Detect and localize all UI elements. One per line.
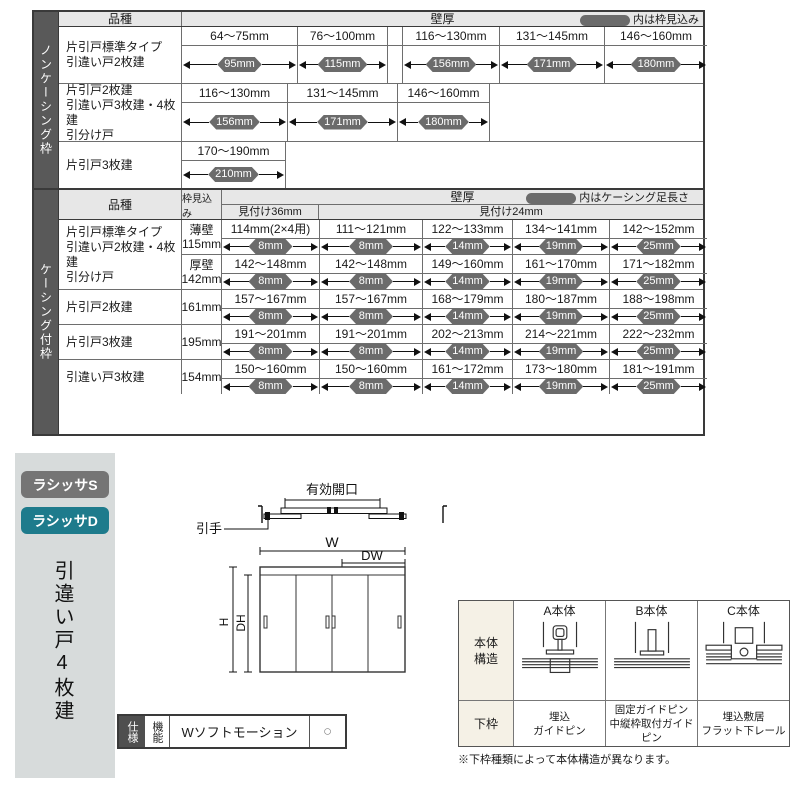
legend-capsule-icon	[526, 193, 576, 204]
arrowhead-icon	[699, 278, 706, 286]
arrow-line	[618, 246, 636, 247]
arrowhead-icon	[611, 278, 618, 286]
arrow-line	[431, 386, 445, 387]
arrowhead-icon	[321, 348, 328, 356]
dimension-arrow: 25mm	[610, 344, 707, 359]
door-diagram: 有効開口 引手 W DW H DH	[150, 470, 470, 720]
dimension-cell: 142〜148mm8mm	[222, 255, 319, 289]
arrowhead-icon	[491, 61, 498, 69]
wall-range: 161〜172mm	[423, 360, 512, 379]
frame-depth-capsule: 210mm	[208, 167, 259, 182]
lower-frame-c: 埋込敷居 フラット下レール	[698, 701, 789, 746]
frame-depth-capsule: 19mm	[539, 239, 584, 254]
legend-text: 内はケーシング足長さ	[579, 191, 689, 206]
wall-range: 116〜130mm	[182, 84, 287, 103]
wall-range: 76〜100mm	[298, 27, 387, 46]
kind-column-header: 品種	[59, 12, 182, 26]
dimension-arrow: 25mm	[610, 309, 707, 324]
arrow-line	[190, 122, 209, 123]
wall-range: 214〜221mm	[513, 325, 609, 344]
dimension-cell: 214〜221mm19mm	[512, 325, 609, 359]
frame-depth-capsule: 8mm	[249, 239, 293, 254]
dimension-arrow: 8mm	[222, 239, 319, 254]
dimension-subrow: 161mm157〜167mm8mm157〜167mm8mm168〜179mm14…	[182, 290, 703, 324]
arrow-line	[293, 351, 312, 352]
dimension-subrow: 195mm191〜201mm8mm191〜201mm8mm202〜213mm14…	[182, 325, 703, 359]
empty-filler-cell	[285, 142, 703, 188]
non-casing-table: ノンケーシング枠 品種 壁厚 内は枠見込み 片引戸標準タイプ 引違い戸2枚建64…	[32, 10, 705, 190]
arrow-line	[230, 246, 249, 247]
dimension-cell: 122〜133mm14mm	[422, 220, 512, 254]
arrow-line	[431, 246, 445, 247]
arrowhead-icon	[481, 118, 488, 126]
arrowhead-icon	[504, 243, 511, 251]
body-a-title: A本体	[543, 604, 575, 618]
dimension-arrow: 180mm	[605, 46, 707, 83]
dimension-cell: 146〜160mm180mm	[604, 27, 707, 83]
dimension-cell: 191〜201mm8mm	[319, 325, 422, 359]
page: ノンケーシング枠 品種 壁厚 内は枠見込み 片引戸標準タイプ 引違い戸2枚建64…	[0, 0, 800, 800]
arrow-line	[490, 351, 504, 352]
series-badge-lixil-s[interactable]: ラシッサS	[21, 471, 109, 498]
arrowhead-icon	[699, 61, 706, 69]
arrowhead-icon	[611, 313, 618, 321]
arrowhead-icon	[514, 278, 521, 286]
wall-range: 142〜148mm	[222, 255, 319, 274]
arrowhead-icon	[596, 61, 603, 69]
arrow-line	[393, 386, 414, 387]
arrowhead-icon	[183, 61, 190, 69]
arrow-line	[262, 64, 289, 65]
arrowhead-icon	[311, 243, 318, 251]
dimension-cell: 168〜179mm14mm	[422, 290, 512, 324]
arrow-line	[583, 246, 601, 247]
dimension-arrow: 19mm	[513, 379, 609, 394]
wall-range: 191〜201mm	[320, 325, 422, 344]
arrow-line	[230, 386, 249, 387]
arrow-line	[618, 351, 636, 352]
dimension-cell: 150〜160mm8mm	[222, 360, 319, 394]
wall-range: 149〜160mm	[423, 255, 512, 274]
wall-thickness-header-cell: 壁厚 内はケーシング足長さ	[222, 190, 703, 205]
arrow-line	[681, 351, 699, 352]
arrow-line	[583, 351, 601, 352]
arrowhead-icon	[504, 383, 511, 391]
arrowhead-icon	[289, 61, 296, 69]
table-row: 片引戸2枚建161mm157〜167mm8mm157〜167mm8mm168〜1…	[59, 289, 703, 324]
dh-dim-label: DH	[234, 614, 248, 631]
arrow-line	[490, 386, 504, 387]
arrow-line	[306, 64, 318, 65]
arrowhead-icon	[414, 383, 421, 391]
facing-36-header: 見付け36mm	[222, 205, 319, 219]
arrowhead-icon	[514, 313, 521, 321]
arrowhead-icon	[424, 348, 431, 356]
frame-depth-capsule: 8mm	[349, 274, 393, 289]
wall-range: 146〜160mm	[398, 84, 489, 103]
dimension-arrow: 19mm	[513, 309, 609, 324]
dimension-cell: 134〜141mm19mm	[512, 220, 609, 254]
table-row: 片引戸3枚建195mm191〜201mm8mm191〜201mm8mm202〜2…	[59, 324, 703, 359]
wall-range: 131〜145mm	[288, 84, 397, 103]
h-dim-label: H	[217, 618, 231, 627]
product-label: 片引戸3枚建	[59, 142, 182, 188]
wall-range: 157〜167mm	[320, 290, 422, 309]
arrowhead-icon	[223, 348, 230, 356]
arrow-line	[681, 316, 699, 317]
dimension-subrow: 170〜190mm210mm	[182, 142, 703, 188]
dimension-cell: 131〜145mm171mm	[499, 27, 604, 83]
frame-depth-capsule: 180mm	[631, 57, 682, 72]
frame-depth-capsule: 19mm	[539, 274, 584, 289]
arrowhead-icon	[601, 383, 608, 391]
non-casing-side-label: ノンケーシング枠	[34, 12, 59, 188]
product-label: 片引戸3枚建	[59, 325, 182, 359]
dimension-cell: 157〜167mm8mm	[319, 290, 422, 324]
wall-range: 116〜130mm	[403, 27, 499, 46]
arrow-line	[328, 316, 349, 317]
dimension-arrow: 19mm	[513, 239, 609, 254]
arrow-line	[293, 281, 312, 282]
wall-range: 150〜160mm	[320, 360, 422, 379]
handle-mark-right	[399, 512, 404, 520]
wall-range: 150〜160mm	[222, 360, 319, 379]
dimension-arrow: 8mm	[320, 239, 422, 254]
dimension-cell: 171〜182mm25mm	[609, 255, 707, 289]
kind-column-header: 品種	[59, 190, 182, 219]
arrowhead-icon	[699, 348, 706, 356]
arrow-line	[368, 122, 389, 123]
frame-depth-capsule: 25mm	[636, 344, 681, 359]
arrowhead-icon	[223, 243, 230, 251]
dimension-arrow: 8mm	[222, 379, 319, 394]
arrow-line	[469, 122, 481, 123]
arrow-line	[431, 316, 445, 317]
dimension-arrow: 8mm	[222, 274, 319, 289]
arrowhead-icon	[504, 313, 511, 321]
arrow-line	[681, 246, 699, 247]
arrowhead-icon	[311, 278, 318, 286]
arrow-line	[618, 386, 636, 387]
arrowhead-icon	[321, 243, 328, 251]
dimension-arrow: 25mm	[610, 274, 707, 289]
dimension-cell: 149〜160mm14mm	[422, 255, 512, 289]
frame-depth-capsule: 25mm	[636, 239, 681, 254]
table-row: 片引戸標準タイプ 引違い戸2枚建64〜75mm95mm76〜100mm115mm…	[59, 27, 703, 83]
dimension-cell: 142〜152mm25mm	[609, 220, 707, 254]
arrow-line	[681, 386, 699, 387]
soft-motion-feature: Wソフトモーション	[170, 716, 310, 747]
arrowhead-icon	[223, 383, 230, 391]
arrowhead-icon	[279, 118, 286, 126]
wall-range: 122〜133mm	[423, 220, 512, 239]
dimension-cell: 114mm(2×4用)8mm	[222, 220, 319, 254]
dimension-arrow: 156mm	[403, 46, 499, 83]
wall-thickness-header-group: 壁厚 内はケーシング足長さ 見付け36mm 見付け24mm	[222, 190, 703, 219]
body-b-title: B本体	[635, 604, 667, 618]
arrowhead-icon	[514, 348, 521, 356]
wall-range: 157〜167mm	[222, 290, 319, 309]
table1-header: 品種 壁厚 内は枠見込み	[59, 12, 703, 27]
dimension-cell: 170〜190mm210mm	[182, 142, 285, 188]
dimension-cell: 146〜160mm180mm	[397, 84, 489, 141]
arrowhead-icon	[514, 383, 521, 391]
arrow-line	[431, 281, 445, 282]
arrow-line	[328, 246, 349, 247]
dimension-arrow: 14mm	[423, 379, 512, 394]
dimension-arrow	[388, 46, 402, 83]
arrowhead-icon	[611, 348, 618, 356]
arrow-line	[618, 281, 636, 282]
arrow-line	[431, 351, 445, 352]
arrowhead-icon	[699, 383, 706, 391]
frame-depth-capsule: 14mm	[445, 344, 490, 359]
wall-thickness-header-cell: 壁厚 内は枠見込み	[182, 12, 703, 26]
dw-dim-label: DW	[361, 548, 383, 563]
dimension-arrow: 19mm	[513, 344, 609, 359]
lower-frame-row-label: 下枠	[459, 701, 514, 746]
dimension-arrow: 14mm	[423, 309, 512, 324]
dimension-arrow: 156mm	[182, 103, 287, 141]
wall-range: 142〜148mm	[320, 255, 422, 274]
dimension-subrow: 154mm150〜160mm8mm150〜160mm8mm161〜172mm14…	[182, 360, 703, 394]
arrow-line	[577, 64, 596, 65]
handle-mark-left	[265, 512, 270, 520]
frame-depth-capsule: 14mm	[445, 274, 490, 289]
dimension-cell: 157〜167mm8mm	[222, 290, 319, 324]
arrowhead-icon	[404, 61, 411, 69]
lower-frame-a: 埋込 ガイドピン	[514, 701, 606, 746]
frame-depth-capsule: 171mm	[527, 57, 578, 72]
wall-range: 222〜232mm	[610, 325, 707, 344]
body-structure-row-label: 本体 構造	[459, 601, 514, 701]
arrowhead-icon	[379, 61, 386, 69]
arrow-line	[293, 316, 312, 317]
wall-range: 173〜180mm	[513, 360, 609, 379]
arrowhead-icon	[414, 278, 421, 286]
dimension-subrow: 厚壁 142mm142〜148mm8mm142〜148mm8mm149〜160m…	[182, 254, 703, 289]
body-c-title: C本体	[727, 604, 760, 618]
table-row: 引違い戸3枚建154mm150〜160mm8mm150〜160mm8mm161〜…	[59, 359, 703, 394]
product-label: 片引戸2枚建	[59, 290, 182, 324]
wall-range: 181〜191mm	[610, 360, 707, 379]
arrowhead-icon	[311, 348, 318, 356]
frame-depth-capsule: 8mm	[349, 239, 393, 254]
arrow-line	[681, 64, 699, 65]
dimension-cell: 181〜191mm25mm	[609, 360, 707, 394]
wall-range: 142〜152mm	[610, 220, 707, 239]
dimension-arrow: 14mm	[423, 239, 512, 254]
dimension-cell: 116〜130mm156mm	[402, 27, 499, 83]
wall-range: 171〜182mm	[610, 255, 707, 274]
table2-main: 品種 枠見込み 壁厚 内はケーシング足長さ 見付け36mm 見付け24mm	[59, 190, 703, 434]
structure-c-cell: C本体	[698, 601, 789, 701]
arrowhead-icon	[699, 313, 706, 321]
arrow-line	[190, 174, 208, 175]
arrow-line	[583, 316, 601, 317]
arrow-line	[613, 64, 631, 65]
arrowhead-icon	[399, 118, 406, 126]
frame-depth-capsule: 25mm	[636, 379, 681, 394]
product-sidebar: ラシッサS ラシッサD 引違い戸4枚建	[15, 453, 115, 778]
legend: 内は枠見込み	[580, 13, 699, 28]
arrowhead-icon	[601, 313, 608, 321]
dimension-cell: 116〜130mm156mm	[182, 84, 287, 141]
body-c-section-icon	[700, 618, 788, 688]
arrow-line	[393, 281, 414, 282]
arrow-line	[190, 64, 217, 65]
arrow-line	[521, 281, 539, 282]
structure-b-cell: B本体	[606, 601, 698, 701]
arrow-line	[328, 281, 349, 282]
frame-depth-cell: 薄壁 115mm	[182, 220, 222, 254]
frame-depth-cell: 154mm	[182, 360, 222, 394]
frame-depth-capsule: 8mm	[349, 309, 393, 324]
arrowhead-icon	[504, 348, 511, 356]
arrowhead-icon	[414, 348, 421, 356]
legend-text: 内は枠見込み	[633, 13, 699, 28]
dimension-arrow: 8mm	[320, 344, 422, 359]
arrow-line	[328, 351, 349, 352]
body-a-section-icon	[516, 618, 604, 688]
table1-rows: 片引戸標準タイプ 引違い戸2枚建64〜75mm95mm76〜100mm115mm…	[59, 27, 703, 188]
dimension-cell: 161〜170mm19mm	[512, 255, 609, 289]
frame-depth-capsule: 115mm	[318, 57, 368, 72]
dimension-cell: 131〜145mm171mm	[287, 84, 397, 141]
arrowhead-icon	[601, 278, 608, 286]
facing-width-subheader: 見付け36mm 見付け24mm	[222, 205, 703, 219]
frame-depth-capsule: 25mm	[636, 309, 681, 324]
wall-thickness-header: 壁厚	[430, 12, 454, 26]
arrowhead-icon	[611, 383, 618, 391]
body-structure-table: 本体 構造 A本体 B本体 C本体	[458, 600, 790, 747]
arrowhead-icon	[311, 383, 318, 391]
arrow-line	[296, 122, 317, 123]
arrowhead-icon	[601, 348, 608, 356]
arrow-line	[406, 122, 418, 123]
arrow-line	[230, 281, 249, 282]
dimension-arrow: 14mm	[423, 344, 512, 359]
arrowhead-icon	[606, 61, 613, 69]
dimension-arrow: 8mm	[320, 379, 422, 394]
frame-depth-capsule: 25mm	[636, 274, 681, 289]
product-label: 片引戸2枚建 引違い戸3枚建・4枚建 引分け戸	[59, 84, 182, 141]
dimension-arrow: 14mm	[423, 274, 512, 289]
frame-depth-capsule: 180mm	[418, 115, 469, 130]
arrowhead-icon	[183, 171, 190, 179]
frame-depth-capsule: 8mm	[249, 344, 293, 359]
dimension-arrow: 19mm	[513, 274, 609, 289]
dimension-arrow: 171mm	[288, 103, 397, 141]
frame-depth-capsule: 19mm	[539, 309, 584, 324]
dimension-arrow: 180mm	[398, 103, 489, 141]
arrow-line	[230, 316, 249, 317]
arrowhead-icon	[277, 171, 284, 179]
frame-depth-capsule: 156mm	[426, 57, 477, 72]
feature-available-mark: ○	[310, 716, 345, 747]
arrow-line	[259, 174, 277, 175]
structure-a-cell: A本体	[514, 601, 606, 701]
casing-table: ケーシング付枠 品種 枠見込み 壁厚 内はケーシング足長さ 見付け36mm 見	[32, 188, 705, 436]
series-badge-lixil-d[interactable]: ラシッサD	[21, 507, 109, 534]
arrowhead-icon	[611, 243, 618, 251]
arrow-line	[230, 351, 249, 352]
arrow-line	[508, 64, 527, 65]
arrowhead-icon	[414, 243, 421, 251]
wall-range: 168〜179mm	[423, 290, 512, 309]
wall-range: 134〜141mm	[513, 220, 609, 239]
dimension-subrow: 薄壁 115mm114mm(2×4用)8mm111〜121mm8mm122〜13…	[182, 220, 703, 254]
table-row: 片引戸標準タイプ 引違い戸2枚建・4枚建 引分け戸薄壁 115mm114mm(2…	[59, 220, 703, 289]
wall-range: 114mm(2×4用)	[222, 220, 319, 239]
wall-range	[388, 27, 402, 46]
product-label: 片引戸標準タイプ 引違い戸2枚建・4枚建 引分け戸	[59, 220, 182, 289]
arrowhead-icon	[514, 243, 521, 251]
casing-side-label: ケーシング付枠	[34, 190, 59, 434]
arrowhead-icon	[424, 313, 431, 321]
arrow-line	[490, 281, 504, 282]
dimension-arrow: 95mm	[182, 46, 297, 83]
dimension-subrow: 116〜130mm156mm131〜145mm171mm146〜160mm180…	[182, 84, 703, 141]
arrow-line	[293, 386, 312, 387]
dimension-cell: 111〜121mm8mm	[319, 220, 422, 254]
dimension-arrow: 115mm	[298, 46, 387, 83]
arrowhead-icon	[699, 243, 706, 251]
spec-label: 仕様	[119, 716, 145, 747]
wall-thickness-header: 壁厚	[450, 190, 474, 204]
lower-frame-b: 固定ガイドピン 中縦枠取付ガイドピン	[606, 701, 698, 746]
frame-depth-cell: 厚壁 142mm	[182, 255, 222, 289]
dimension-cell: 202〜213mm14mm	[422, 325, 512, 359]
dimension-cell: 188〜198mm25mm	[609, 290, 707, 324]
structure-note: ※下枠種類によって本体構造が異なります。	[458, 751, 676, 767]
frame-depth-capsule: 8mm	[249, 379, 293, 394]
dimension-arrow: 25mm	[610, 379, 707, 394]
arrow-line	[583, 386, 601, 387]
frame-depth-capsule: 19mm	[539, 344, 584, 359]
arrow-line	[521, 246, 539, 247]
arrowhead-icon	[424, 383, 431, 391]
wall-range: 161〜170mm	[513, 255, 609, 274]
legend: 内はケーシング足長さ	[526, 191, 689, 206]
spec-table: 仕様 機能 Wソフトモーション ○	[117, 714, 347, 749]
empty-filler-cell	[489, 84, 703, 141]
pull-handle-label: 引手	[196, 521, 222, 536]
frame-depth-cell: 195mm	[182, 325, 222, 359]
dimension-arrow: 8mm	[222, 344, 319, 359]
arrow-line	[521, 351, 539, 352]
dimension-cell: 191〜201mm8mm	[222, 325, 319, 359]
dimension-cell: 161〜172mm14mm	[422, 360, 512, 394]
arrow-line	[393, 316, 414, 317]
frame-depth-capsule: 19mm	[539, 379, 584, 394]
wall-range: 191〜201mm	[222, 325, 319, 344]
arrow-line	[411, 64, 426, 65]
dimension-arrow: 171mm	[500, 46, 604, 83]
facing-24-header: 見付け24mm	[319, 205, 703, 219]
arrowhead-icon	[504, 278, 511, 286]
frame-depth-capsule: 14mm	[445, 309, 490, 324]
legend-capsule-icon	[580, 15, 630, 26]
wall-range: 64〜75mm	[182, 27, 297, 46]
frame-depth-capsule: 8mm	[249, 274, 293, 289]
frame-depth-capsule: 156mm	[209, 115, 260, 130]
dimension-cell: 222〜232mm25mm	[609, 325, 707, 359]
wall-range: 170〜190mm	[182, 142, 285, 161]
function-label: 機能	[145, 716, 170, 747]
wall-range: 188〜198mm	[610, 290, 707, 309]
dimension-cell: 142〜148mm8mm	[319, 255, 422, 289]
